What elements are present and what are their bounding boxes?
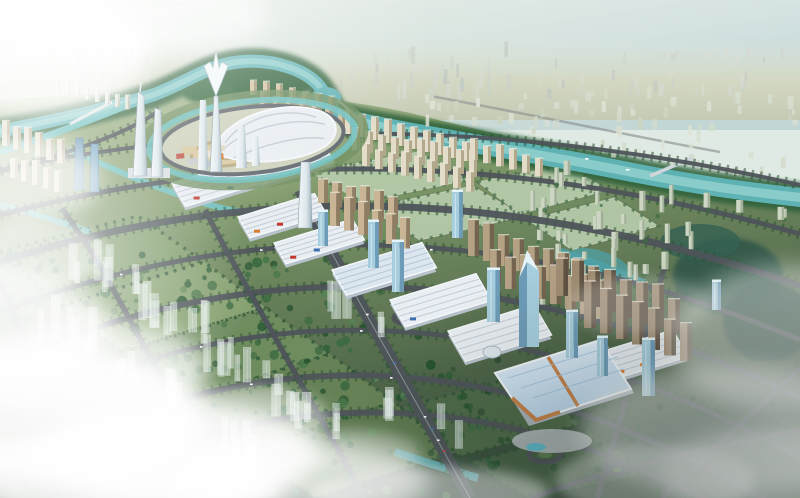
southeast-vignette [0,0,800,498]
aerial-render-canvas: Aerial architectural rendering of a plan… [0,0,800,498]
scene [0,0,800,498]
